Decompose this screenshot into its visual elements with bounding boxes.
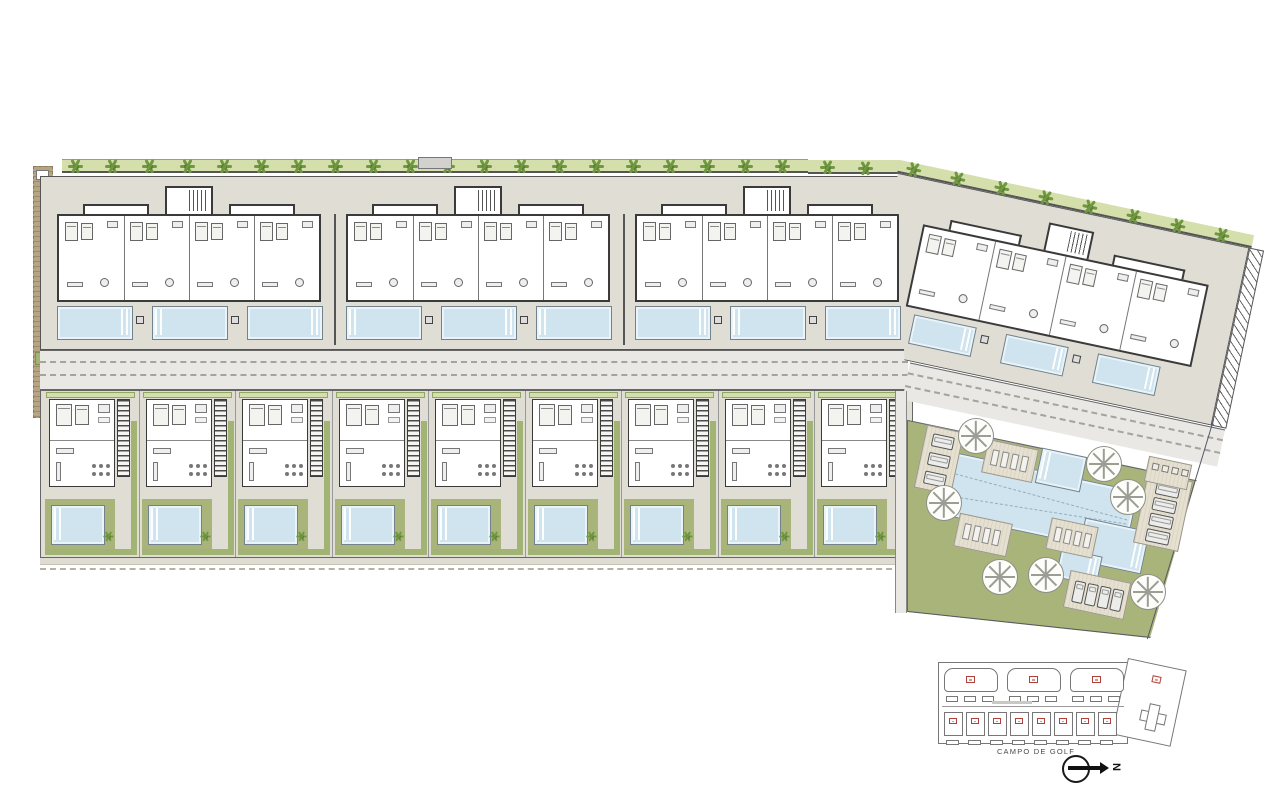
swimming-pool bbox=[346, 306, 422, 340]
palm-tree-icon bbox=[1130, 574, 1166, 610]
bed bbox=[172, 405, 186, 425]
stair-core bbox=[743, 186, 791, 216]
dining-table bbox=[1169, 338, 1180, 349]
unit-divider bbox=[702, 216, 703, 300]
bed bbox=[435, 223, 447, 240]
sun-lounger-icon bbox=[1073, 531, 1083, 547]
unit-marker bbox=[971, 718, 979, 724]
tree-icon bbox=[291, 159, 306, 174]
bed bbox=[558, 405, 572, 425]
interior-wall bbox=[243, 440, 307, 441]
closet bbox=[291, 417, 303, 423]
closet bbox=[581, 417, 593, 423]
tree-icon bbox=[514, 159, 529, 174]
pool-steps bbox=[151, 508, 160, 540]
hedge-bottom bbox=[431, 549, 523, 555]
unit-divider bbox=[832, 216, 833, 300]
bed bbox=[370, 223, 382, 240]
car-icon bbox=[1151, 497, 1177, 515]
sofa bbox=[486, 282, 502, 287]
keyplan-pool bbox=[1090, 696, 1102, 702]
bed bbox=[941, 238, 956, 257]
dining-table bbox=[165, 278, 174, 287]
closet bbox=[484, 417, 496, 423]
tree-icon bbox=[142, 159, 157, 174]
swimming-pool bbox=[630, 505, 684, 545]
hedge-side bbox=[324, 421, 330, 551]
villa-stairs bbox=[503, 399, 516, 477]
equipment-unit bbox=[1161, 465, 1169, 473]
hedge-bottom bbox=[335, 549, 427, 555]
interior-wall bbox=[50, 440, 114, 441]
unit-marker bbox=[993, 718, 1001, 724]
palm-tree-icon bbox=[982, 559, 1018, 595]
hedge-side bbox=[131, 421, 137, 551]
bath-fixture bbox=[750, 221, 761, 228]
sofa bbox=[442, 448, 460, 454]
closet bbox=[195, 417, 207, 423]
bed bbox=[1066, 264, 1083, 285]
plot-divider bbox=[814, 391, 815, 557]
plot-divider bbox=[139, 391, 140, 557]
hedge-top bbox=[625, 392, 714, 398]
swimming-pool bbox=[247, 306, 323, 340]
keyplan-pool bbox=[990, 740, 1003, 745]
swimming-pool bbox=[727, 505, 781, 545]
sun-lounger-icon bbox=[990, 449, 1000, 466]
planter-box bbox=[714, 316, 722, 324]
bed bbox=[195, 222, 208, 241]
bed bbox=[996, 249, 1013, 270]
dining-set bbox=[864, 464, 868, 468]
bath-fixture bbox=[591, 221, 602, 228]
swimming-pool bbox=[57, 306, 133, 340]
bed bbox=[442, 404, 458, 426]
pool-steps bbox=[1144, 367, 1157, 390]
site-plan: CAMPO DE GOLF N bbox=[0, 0, 1280, 800]
sun-lounger-icon bbox=[972, 525, 982, 542]
swimming-pool bbox=[536, 306, 612, 340]
sofa bbox=[132, 282, 148, 287]
boundary-dash bbox=[40, 568, 912, 570]
interior-wall bbox=[340, 440, 404, 441]
equipment-unit bbox=[1151, 463, 1159, 471]
palm-tree-icon bbox=[926, 485, 962, 521]
closet bbox=[677, 417, 689, 423]
bath-fixture bbox=[815, 221, 826, 228]
sofa bbox=[551, 282, 567, 287]
bath-fixture bbox=[976, 243, 988, 252]
tree-icon bbox=[393, 531, 404, 542]
plot-divider bbox=[621, 391, 622, 557]
tree-icon bbox=[775, 159, 790, 174]
bed bbox=[211, 223, 223, 240]
keyplan-villa bbox=[1010, 712, 1029, 736]
bed bbox=[130, 222, 143, 241]
pool-steps bbox=[349, 309, 358, 335]
sofa bbox=[1059, 319, 1076, 327]
bed bbox=[789, 223, 801, 240]
plot-divider bbox=[718, 391, 719, 557]
tree-icon bbox=[700, 159, 715, 174]
bath-fixture bbox=[526, 221, 537, 228]
pool-steps bbox=[537, 508, 546, 540]
bed bbox=[153, 404, 169, 426]
villa-building bbox=[49, 399, 115, 487]
sofa bbox=[346, 448, 364, 454]
villa-building bbox=[242, 399, 308, 487]
pool-steps bbox=[54, 508, 63, 540]
keyplan-villa bbox=[1054, 712, 1073, 736]
keyplan-pool bbox=[1034, 740, 1047, 745]
stairs-hatch bbox=[1067, 231, 1090, 256]
interior-wall bbox=[436, 440, 500, 441]
swimming-pool bbox=[730, 306, 806, 340]
sofa bbox=[56, 448, 74, 454]
interior-wall bbox=[726, 440, 790, 441]
bed bbox=[539, 404, 555, 426]
hedge-bottom bbox=[142, 549, 234, 555]
tree-icon bbox=[180, 159, 195, 174]
villa-stairs bbox=[793, 399, 806, 477]
hedge-bottom bbox=[45, 549, 137, 555]
swimming-pool bbox=[441, 306, 517, 340]
tree-icon bbox=[779, 531, 790, 542]
dining-table bbox=[958, 293, 969, 304]
hedge-bottom bbox=[721, 549, 813, 555]
bath-fixture bbox=[1187, 288, 1199, 297]
tree-icon bbox=[105, 159, 120, 174]
bed bbox=[354, 222, 367, 241]
tree-icon bbox=[403, 159, 418, 174]
bed bbox=[249, 404, 265, 426]
bed bbox=[565, 223, 577, 240]
unit-marker bbox=[1103, 718, 1111, 724]
hedge-side bbox=[710, 421, 716, 551]
north-arrow-icon: N bbox=[1060, 753, 1130, 787]
lane-dash bbox=[40, 374, 908, 376]
hedge-side bbox=[614, 421, 620, 551]
tree-icon bbox=[738, 159, 753, 174]
sun-lounger-icon bbox=[991, 529, 1001, 546]
bed bbox=[635, 404, 651, 426]
planter-box bbox=[980, 335, 989, 344]
hedge-top bbox=[46, 392, 135, 398]
sofa bbox=[645, 282, 661, 287]
bed bbox=[419, 222, 432, 241]
car-icon bbox=[931, 433, 955, 450]
interior-wall bbox=[629, 440, 693, 441]
north-letter: N bbox=[1110, 763, 1122, 771]
bath-fixture bbox=[172, 221, 183, 228]
keyplan-pool bbox=[1072, 696, 1084, 702]
hedge-top bbox=[529, 392, 618, 398]
pool-steps bbox=[539, 309, 548, 335]
pool-steps bbox=[1039, 451, 1054, 480]
sofa bbox=[989, 304, 1006, 312]
hedge-top bbox=[239, 392, 328, 398]
sofa bbox=[197, 282, 213, 287]
equipment-unit bbox=[1171, 467, 1179, 475]
bath-fixture bbox=[581, 404, 593, 413]
unit-divider bbox=[189, 216, 190, 300]
keyplan-villa bbox=[988, 712, 1007, 736]
bed bbox=[146, 223, 158, 240]
pool-steps bbox=[633, 508, 642, 540]
sofa bbox=[775, 282, 791, 287]
interior-wall bbox=[147, 440, 211, 441]
bed bbox=[346, 404, 362, 426]
unit-divider bbox=[543, 216, 544, 300]
bed bbox=[75, 405, 89, 425]
dining-set bbox=[285, 464, 289, 468]
keyplan-pool bbox=[1045, 696, 1057, 702]
hedge-top bbox=[336, 392, 425, 398]
pool-steps bbox=[505, 309, 514, 335]
car-icon bbox=[1148, 512, 1174, 530]
closet bbox=[774, 417, 786, 423]
sofa bbox=[1130, 334, 1147, 342]
bath-fixture bbox=[237, 221, 248, 228]
keyplan-villa bbox=[944, 712, 963, 736]
sun-lounger-icon bbox=[1082, 533, 1092, 549]
tree-icon bbox=[200, 531, 211, 542]
tree-icon bbox=[103, 531, 114, 542]
bed bbox=[56, 404, 72, 426]
bath-fixture bbox=[677, 404, 689, 413]
plot-divider bbox=[332, 391, 333, 557]
side-path bbox=[895, 391, 907, 613]
tree-icon bbox=[626, 159, 641, 174]
bath-fixture bbox=[774, 404, 786, 413]
swimming-pool bbox=[51, 505, 105, 545]
kitchen-counter bbox=[732, 462, 737, 481]
tree-icon bbox=[217, 159, 232, 174]
sofa bbox=[828, 448, 846, 454]
planter-box bbox=[231, 316, 239, 324]
dining-table bbox=[454, 278, 463, 287]
tree-icon bbox=[875, 531, 886, 542]
keyplan-pool bbox=[946, 740, 959, 745]
lower-path bbox=[40, 558, 912, 565]
bed bbox=[276, 223, 288, 240]
planter-box bbox=[1072, 354, 1081, 363]
bed bbox=[1137, 279, 1154, 300]
plot-divider bbox=[235, 391, 236, 557]
keyplan-street bbox=[942, 706, 1124, 707]
swimming-pool bbox=[244, 505, 298, 545]
kitchen-counter bbox=[153, 462, 158, 481]
bed bbox=[365, 405, 379, 425]
bed bbox=[854, 223, 866, 240]
kitchen-counter bbox=[346, 462, 351, 481]
unit-marker bbox=[1081, 718, 1089, 724]
hedge-side bbox=[421, 421, 427, 551]
hedge-bottom bbox=[624, 549, 716, 555]
keyplan-pool bbox=[1078, 740, 1091, 745]
tree-icon bbox=[366, 159, 381, 174]
hedge-top bbox=[432, 392, 521, 398]
tree-icon bbox=[296, 531, 307, 542]
unit-marker bbox=[1037, 718, 1045, 724]
tree-icon bbox=[477, 159, 492, 174]
villa-building bbox=[532, 399, 598, 487]
dining-set bbox=[671, 464, 675, 468]
palm-tree-icon bbox=[1086, 446, 1122, 482]
keyplan-pool bbox=[1100, 740, 1113, 745]
keyplan-pool bbox=[1012, 740, 1025, 745]
bath-fixture bbox=[685, 221, 696, 228]
tree-icon bbox=[820, 160, 835, 175]
closet bbox=[388, 417, 400, 423]
planter-box bbox=[520, 316, 528, 324]
bed bbox=[838, 222, 851, 241]
bed bbox=[1082, 268, 1097, 287]
sun-lounger-icon bbox=[1009, 453, 1019, 470]
hedge-top bbox=[722, 392, 811, 398]
planter-box bbox=[425, 316, 433, 324]
terrace-divider bbox=[623, 214, 625, 345]
hedge-side bbox=[517, 421, 523, 551]
villa-building bbox=[628, 399, 694, 487]
dining-table bbox=[743, 278, 752, 287]
dining-set bbox=[189, 464, 193, 468]
bed bbox=[268, 405, 282, 425]
swimming-pool bbox=[437, 505, 491, 545]
hedge-side bbox=[807, 421, 813, 551]
apartment-building bbox=[346, 214, 610, 302]
hedge-bottom bbox=[238, 549, 330, 555]
sofa bbox=[710, 282, 726, 287]
tree-icon bbox=[589, 159, 604, 174]
keyplan-pool bbox=[946, 696, 958, 702]
equipment-unit bbox=[1181, 469, 1189, 477]
dining-table bbox=[584, 278, 593, 287]
sofa bbox=[356, 282, 372, 287]
stair-core bbox=[165, 186, 213, 216]
villa-stairs bbox=[310, 399, 323, 477]
pool-steps bbox=[247, 508, 256, 540]
pool-steps bbox=[826, 508, 835, 540]
tree-icon bbox=[552, 159, 567, 174]
sofa bbox=[635, 448, 653, 454]
stairs-hatch bbox=[478, 190, 498, 211]
villa-stairs bbox=[600, 399, 613, 477]
closet bbox=[870, 417, 882, 423]
lane-dash bbox=[40, 361, 908, 363]
tree-icon bbox=[663, 159, 678, 174]
bath-fixture bbox=[1117, 273, 1129, 282]
kitchen-counter bbox=[56, 462, 61, 481]
swimming-pool bbox=[823, 505, 877, 545]
terrace-divider bbox=[334, 214, 336, 345]
kitchen-counter bbox=[635, 462, 640, 481]
bed bbox=[81, 223, 93, 240]
villa-stairs bbox=[696, 399, 709, 477]
dining-set bbox=[382, 464, 386, 468]
bath-fixture bbox=[484, 404, 496, 413]
dining-table bbox=[389, 278, 398, 287]
pool-steps bbox=[344, 508, 353, 540]
bed bbox=[65, 222, 78, 241]
unit-divider bbox=[124, 216, 125, 300]
planter-box bbox=[136, 316, 144, 324]
bed bbox=[751, 405, 765, 425]
bed bbox=[260, 222, 273, 241]
sofa bbox=[262, 282, 278, 287]
bed bbox=[724, 223, 736, 240]
bed bbox=[484, 222, 497, 241]
villa-stairs bbox=[214, 399, 227, 477]
pool-steps bbox=[699, 309, 708, 335]
villa-band bbox=[40, 390, 913, 558]
unit-marker bbox=[966, 676, 975, 683]
pool-steps bbox=[155, 309, 164, 335]
kitchen-counter bbox=[249, 462, 254, 481]
keyplan-pool bbox=[964, 696, 976, 702]
unit-marker bbox=[1029, 676, 1038, 683]
sofa bbox=[421, 282, 437, 287]
unit-marker bbox=[1092, 676, 1101, 683]
unit-marker bbox=[1015, 718, 1023, 724]
bath-fixture bbox=[107, 221, 118, 228]
bed bbox=[461, 405, 475, 425]
tree-icon bbox=[254, 159, 269, 174]
planter-box bbox=[809, 316, 817, 324]
swimming-pool bbox=[534, 505, 588, 545]
bath-fixture bbox=[870, 404, 882, 413]
unit-divider bbox=[413, 216, 414, 300]
swimming-pool bbox=[341, 505, 395, 545]
keyplan-villa bbox=[1098, 712, 1117, 736]
tree-icon bbox=[489, 531, 500, 542]
palm-tree-icon bbox=[1028, 557, 1064, 593]
sofa bbox=[732, 448, 750, 454]
hedge-side bbox=[228, 421, 234, 551]
street-label-smudge bbox=[992, 701, 1032, 704]
tree-icon bbox=[328, 159, 343, 174]
dining-set bbox=[92, 464, 96, 468]
swimming-pool bbox=[152, 306, 228, 340]
kitchen-counter bbox=[828, 462, 833, 481]
bed bbox=[1153, 283, 1168, 302]
bed bbox=[708, 222, 721, 241]
bath-fixture bbox=[98, 404, 110, 413]
bed bbox=[500, 223, 512, 240]
bed bbox=[732, 404, 748, 426]
dining-table bbox=[230, 278, 239, 287]
bed bbox=[643, 222, 656, 241]
plot-divider bbox=[428, 391, 429, 557]
dining-table bbox=[808, 278, 817, 287]
kitchen-counter bbox=[539, 462, 544, 481]
bed bbox=[659, 223, 671, 240]
bed bbox=[828, 404, 844, 426]
unit-divider bbox=[478, 216, 479, 300]
sofa bbox=[67, 282, 83, 287]
sun-lounger-icon bbox=[1063, 529, 1073, 545]
pool-steps bbox=[1052, 348, 1065, 371]
pool-steps bbox=[730, 508, 739, 540]
key-plan bbox=[932, 656, 1192, 756]
sun-lounger-icon bbox=[1019, 455, 1029, 472]
car-icon bbox=[1109, 588, 1124, 612]
tree-icon bbox=[68, 159, 83, 174]
stairs-hatch bbox=[767, 190, 787, 211]
dining-table bbox=[1099, 323, 1110, 334]
unit-divider bbox=[254, 216, 255, 300]
villa-building bbox=[725, 399, 791, 487]
